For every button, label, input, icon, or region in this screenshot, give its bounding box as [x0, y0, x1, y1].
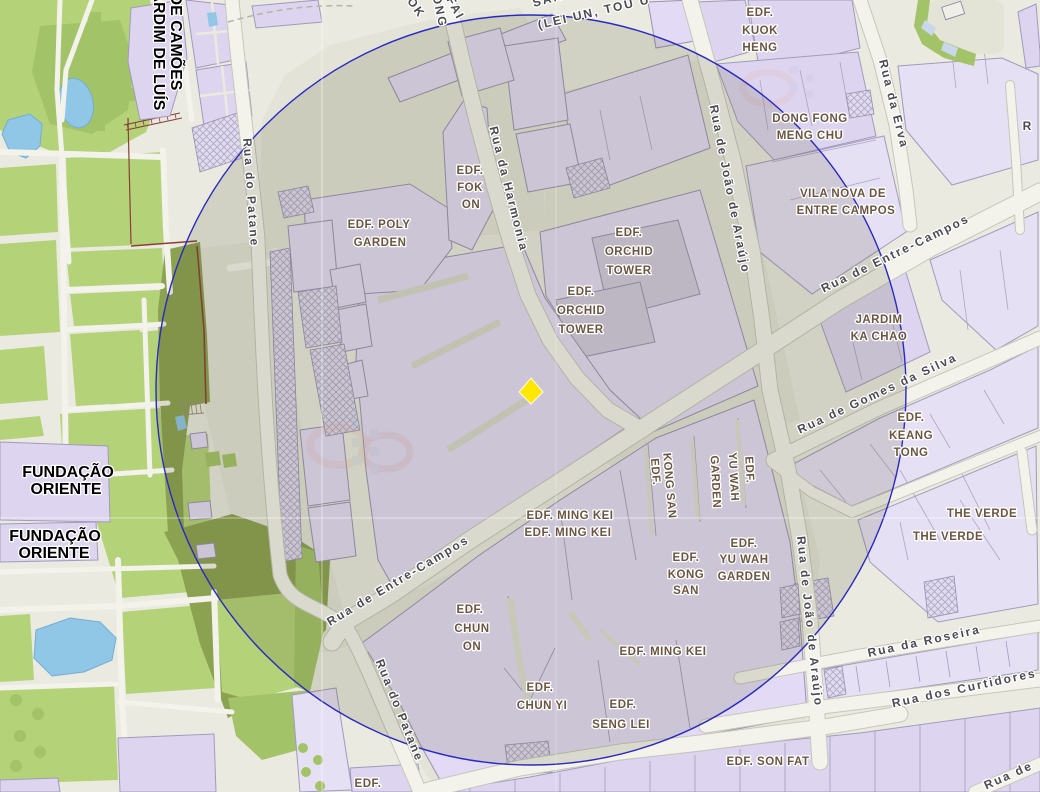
svg-text:ON: ON [462, 199, 480, 211]
svg-text:THE VERDE: THE VERDE [947, 508, 1017, 520]
svg-text:EDF.: EDF. [457, 165, 484, 177]
svg-text:VILA NOVA DE: VILA NOVA DE [800, 188, 886, 200]
svg-text:TONG: TONG [893, 447, 928, 459]
svg-text:ENTRE CAMPOS: ENTRE CAMPOS [797, 205, 896, 217]
svg-text:EDF.: EDF. [898, 412, 925, 424]
svg-text:DONG FONG: DONG FONG [772, 113, 847, 125]
svg-text:CHUN YI: CHUN YI [517, 700, 568, 712]
svg-text:EDF. MING KEI: EDF. MING KEI [524, 527, 611, 539]
svg-text:EDF. SON FAT: EDF. SON FAT [726, 756, 809, 768]
svg-text:EDF.: EDF. [742, 456, 755, 484]
svg-text:YU WAH: YU WAH [720, 554, 769, 566]
svg-text:EDF.: EDF. [527, 682, 554, 694]
svg-text:HENG: HENG [742, 42, 777, 54]
svg-text:CHUN: CHUN [454, 623, 489, 635]
svg-text:EDF.: EDF. [747, 7, 774, 19]
svg-text:KEANG: KEANG [889, 430, 933, 442]
svg-text:KONG: KONG [668, 569, 705, 581]
svg-text:TOWER: TOWER [558, 324, 603, 336]
svg-text:KA CHAO: KA CHAO [851, 331, 908, 343]
svg-text:EDF.: EDF. [457, 604, 484, 616]
svg-text:MENG CHU: MENG CHU [777, 130, 844, 142]
svg-text:EDF.: EDF. [355, 778, 382, 790]
svg-text:ORCHID: ORCHID [605, 246, 653, 258]
svg-text:TOWER: TOWER [606, 265, 651, 277]
svg-text:EDF.: EDF. [731, 538, 758, 550]
svg-text:JARDIM: JARDIM [855, 314, 902, 326]
svg-text:GARDEN: GARDEN [354, 237, 407, 249]
svg-text:ON: ON [463, 641, 481, 653]
svg-text:EDF.: EDF. [610, 699, 637, 711]
svg-text:FUNDAÇÃO: FUNDAÇÃO [9, 525, 101, 545]
svg-text:KUOK: KUOK [742, 25, 778, 37]
svg-text:ORIENTE: ORIENTE [18, 545, 89, 562]
svg-text:EDF.: EDF. [616, 227, 643, 239]
svg-text:ORCHID: ORCHID [557, 305, 605, 317]
svg-text:EDF. MING KEI: EDF. MING KEI [619, 646, 706, 658]
svg-text:ORIENTE: ORIENTE [30, 481, 101, 498]
svg-text:EDF.: EDF. [673, 552, 700, 564]
svg-text:SENG LEI: SENG LEI [592, 719, 650, 731]
svg-text:EDF. MING KEI: EDF. MING KEI [526, 510, 613, 522]
svg-text:GARDEN: GARDEN [718, 571, 771, 583]
svg-text:YU WAH: YU WAH [726, 452, 741, 502]
svg-text:FOK: FOK [457, 182, 483, 194]
svg-text:R: R [1023, 119, 1034, 133]
svg-text:JARDIM DE LUÍS: JARDIM DE LUÍS [150, 0, 169, 111]
svg-text:EDF.: EDF. [648, 458, 662, 486]
svg-text:EDF. POLY: EDF. POLY [348, 219, 411, 231]
svg-text:FUNDAÇÃO: FUNDAÇÃO [22, 461, 114, 481]
svg-text:SAN: SAN [673, 585, 699, 597]
svg-text:EDF.: EDF. [568, 286, 595, 298]
svg-text:THE VERDE: THE VERDE [913, 531, 983, 543]
svg-text:DE CAMÕES: DE CAMÕES [167, 0, 187, 91]
